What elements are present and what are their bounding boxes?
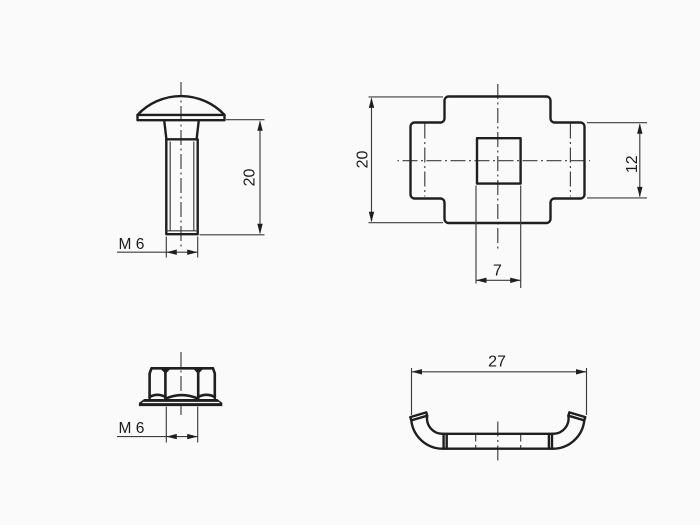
svg-text:12: 12: [624, 155, 641, 173]
svg-text:20: 20: [241, 169, 258, 187]
svg-text:7: 7: [493, 263, 502, 280]
svg-text:M 6: M 6: [119, 236, 145, 253]
svg-text:M 6: M 6: [119, 420, 145, 437]
svg-text:27: 27: [488, 354, 506, 371]
svg-text:20: 20: [355, 151, 372, 169]
